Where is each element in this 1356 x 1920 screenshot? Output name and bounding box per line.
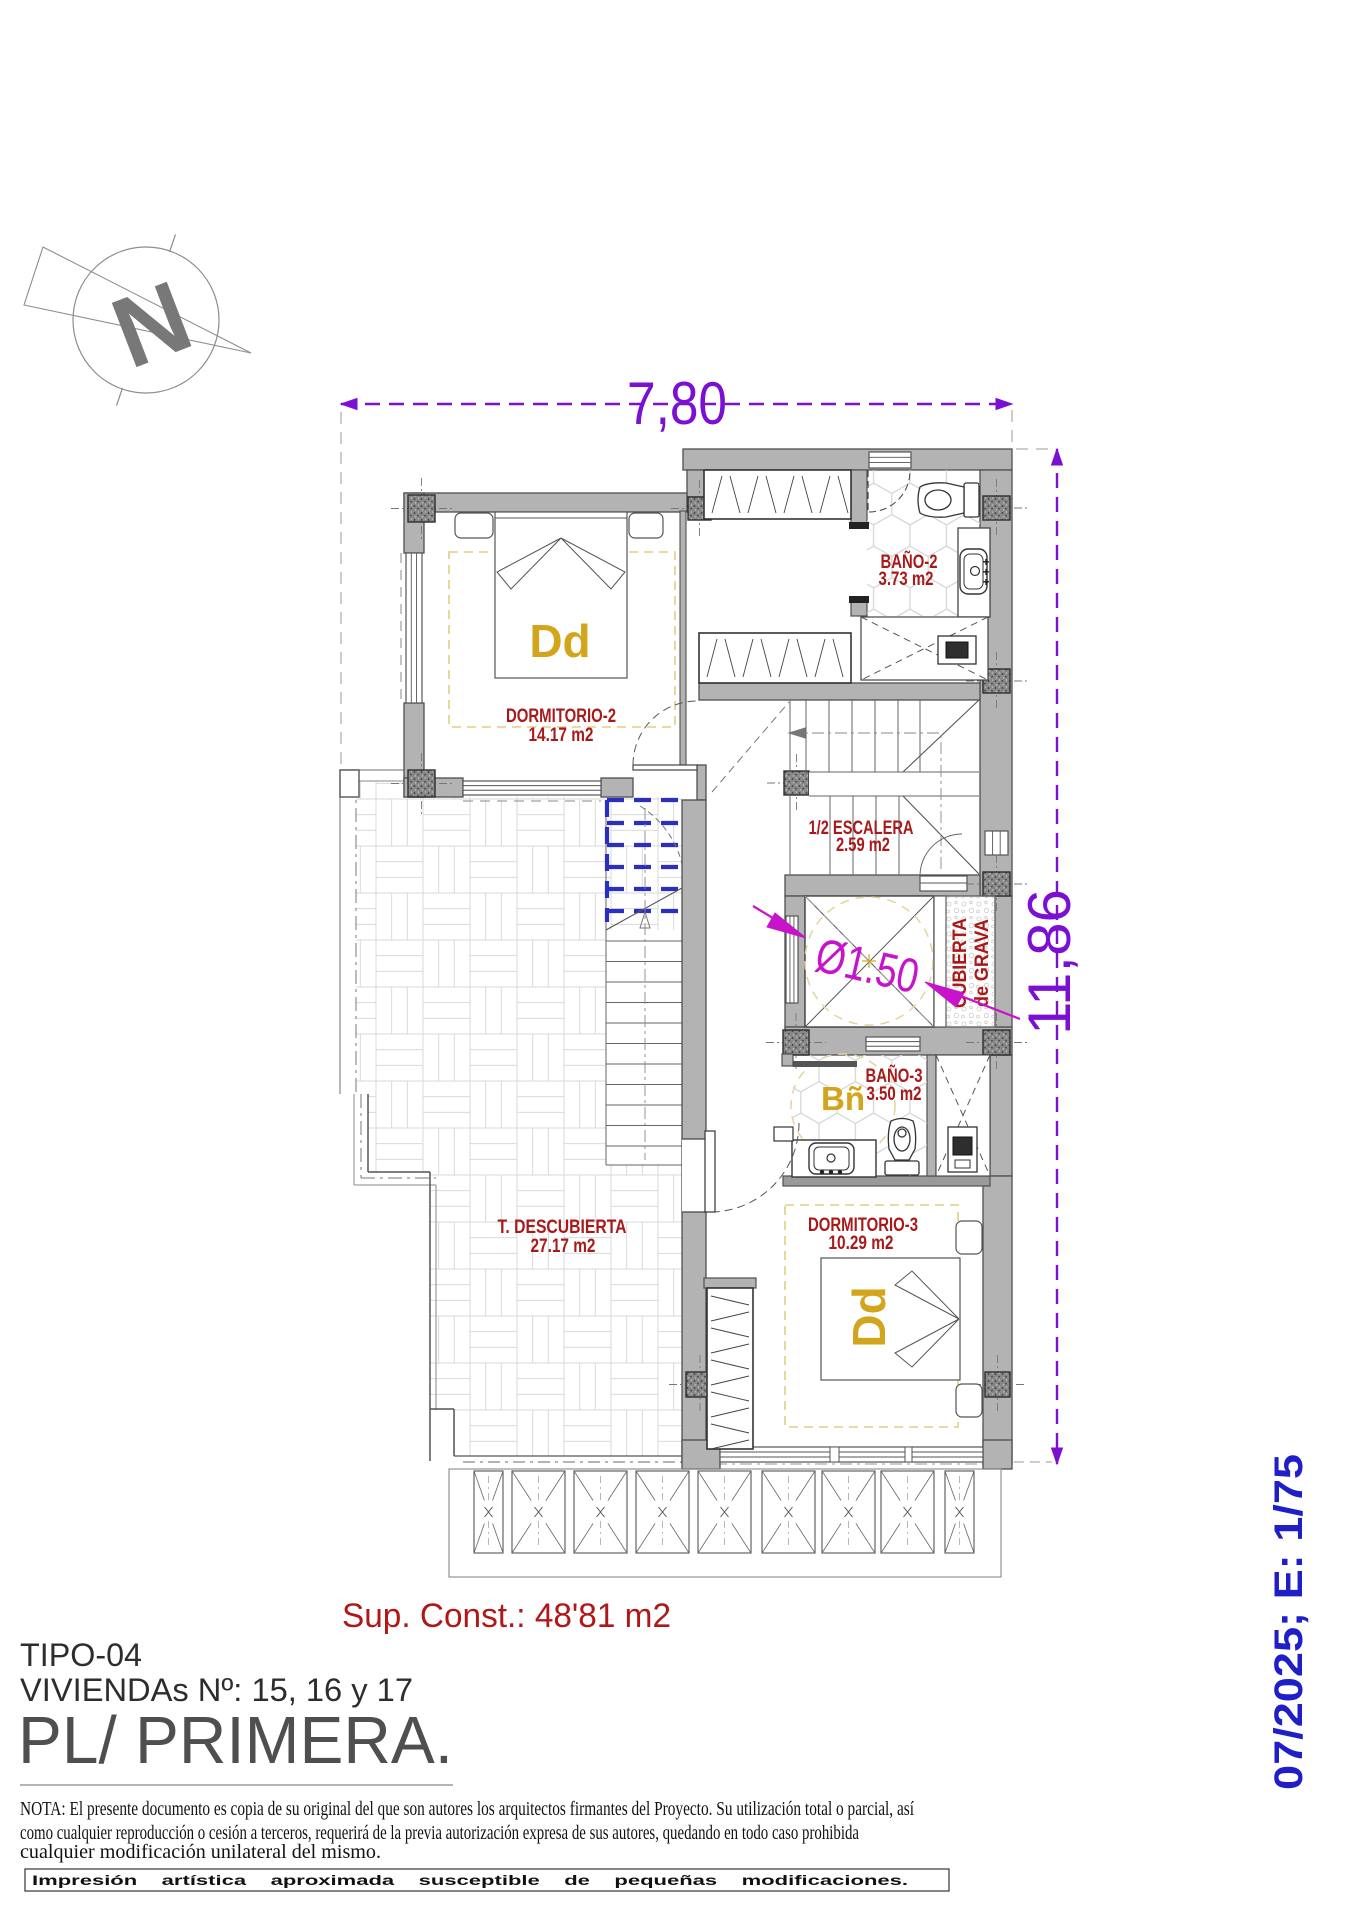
svg-text:+: +: [982, 575, 989, 589]
svg-text:Dd: Dd: [529, 615, 590, 667]
svg-text:07/2025; E: 1/75: 07/2025; E: 1/75: [1267, 1454, 1311, 1790]
svg-text:10.29 m2: 10.29 m2: [829, 1233, 894, 1254]
svg-text:11,86: 11,86: [1016, 889, 1083, 1035]
svg-text:Bñ: Bñ: [821, 1080, 865, 1117]
svg-text:2.59 m2: 2.59 m2: [836, 835, 890, 856]
svg-text:de GRAVA: de GRAVA: [972, 919, 993, 1007]
svg-text:cualquier modificación unilate: cualquier modificación unilateral del mi…: [20, 1842, 381, 1863]
svg-text:como cualquier reproducción o: como cualquier reproducción o cesión a t…: [20, 1823, 859, 1844]
svg-text:3.73 m2: 3.73 m2: [879, 569, 934, 590]
svg-text:Sup. Const.: 48'81 m2: Sup. Const.: 48'81 m2: [342, 1597, 671, 1635]
svg-text:3.50 m2: 3.50 m2: [867, 1084, 922, 1105]
svg-text:7,80: 7,80: [627, 370, 727, 437]
svg-text:DORMITORIO-2: DORMITORIO-2: [506, 706, 616, 727]
svg-text:NOTA: El presente documento es: NOTA: El presente documento es copia de …: [20, 1799, 914, 1820]
svg-text:27.17 m2: 27.17 m2: [531, 1236, 596, 1257]
svg-text:TIPO-04: TIPO-04: [20, 1637, 142, 1673]
svg-text:PL/ PRIMERA.: PL/ PRIMERA.: [18, 1703, 453, 1778]
svg-text:Dd: Dd: [843, 1286, 895, 1347]
svg-text:T. DESCUBIERTA: T. DESCUBIERTA: [498, 1217, 627, 1238]
svg-text:14.17 m2: 14.17 m2: [529, 725, 594, 746]
svg-text:Impresión artística apro: Impresión artística aproximada susceptib…: [32, 1873, 908, 1888]
